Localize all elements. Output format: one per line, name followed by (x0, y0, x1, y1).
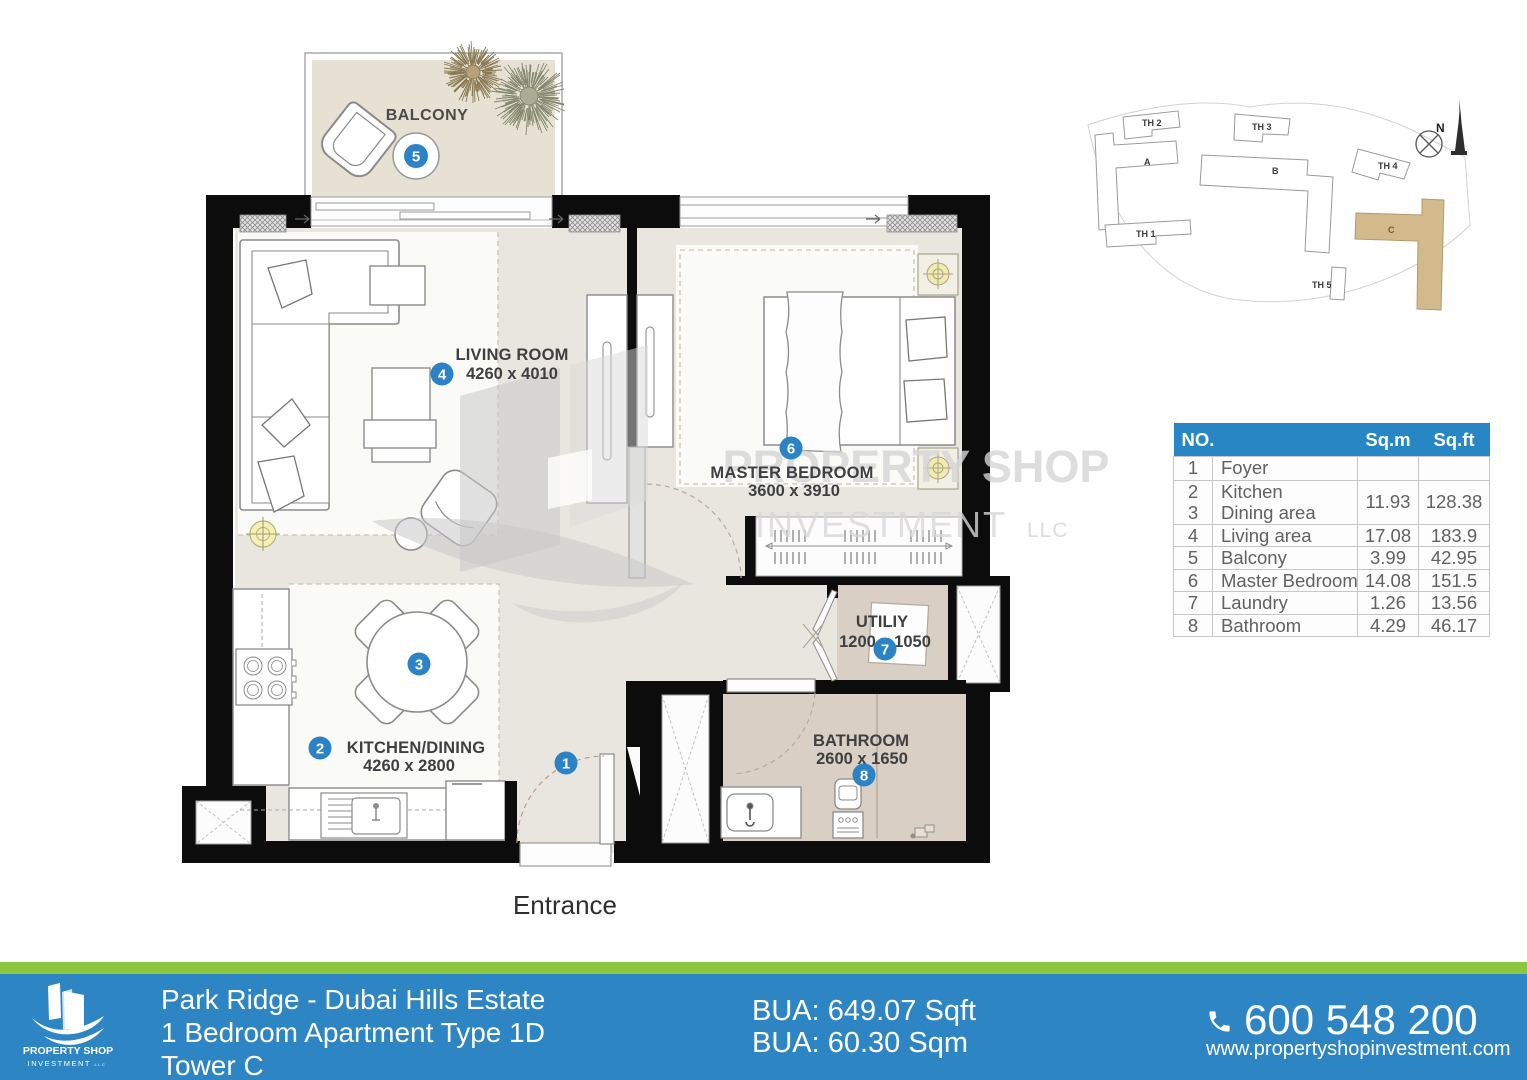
svg-text:C: C (1388, 225, 1395, 235)
svg-text:4260 x 4010: 4260 x 4010 (466, 365, 558, 383)
svg-text:3: 3 (415, 657, 423, 674)
svg-text:5: 5 (412, 149, 420, 166)
svg-text:UTILIY: UTILIY (856, 613, 908, 631)
svg-text:1: 1 (562, 756, 570, 773)
svg-text:TH 4: TH 4 (1378, 161, 1398, 171)
svg-text:TH 5: TH 5 (1312, 280, 1332, 290)
svg-text:TH 3: TH 3 (1252, 122, 1272, 132)
svg-text:INVESTMENT LLC: INVESTMENT LLC (28, 1059, 107, 1068)
svg-text:4260 x 2800: 4260 x 2800 (363, 757, 455, 775)
svg-text:8: 8 (860, 768, 868, 785)
svg-text:4: 4 (438, 367, 447, 384)
svg-text:MASTER BEDROOM: MASTER BEDROOM (710, 464, 873, 482)
svg-text:3600 x 3910: 3600 x 3910 (748, 482, 840, 500)
svg-text:LIVING ROOM: LIVING ROOM (455, 346, 568, 364)
svg-text:TH 1: TH 1 (1136, 229, 1156, 239)
svg-text:N: N (1436, 121, 1445, 135)
svg-text:BATHROOM: BATHROOM (813, 732, 909, 750)
svg-text:A: A (1144, 157, 1151, 167)
svg-text:2: 2 (316, 741, 324, 758)
svg-text:B: B (1272, 166, 1279, 176)
svg-text:6: 6 (787, 441, 795, 458)
svg-text:INVESTMENT: INVESTMENT (755, 504, 1007, 545)
svg-text:7: 7 (881, 642, 889, 659)
svg-text:LLC: LLC (1027, 519, 1069, 542)
svg-text:KITCHEN/DINING: KITCHEN/DINING (347, 739, 485, 757)
svg-text:BALCONY: BALCONY (386, 107, 469, 124)
svg-text:TH 2: TH 2 (1142, 118, 1162, 128)
svg-text:Entrance: Entrance (513, 890, 617, 920)
svg-text:PROPERTY SHOP: PROPERTY SHOP (23, 1045, 113, 1057)
